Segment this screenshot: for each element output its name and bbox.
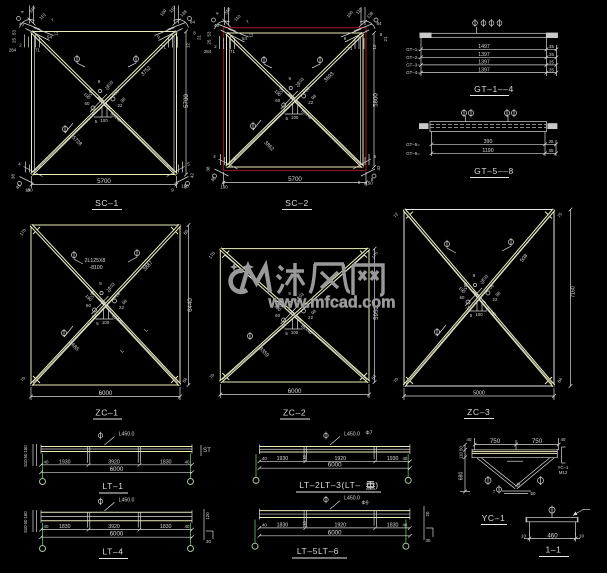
svg-text:180: 180 <box>25 188 33 193</box>
svg-text:M12: M12 <box>559 470 568 475</box>
svg-text:6000: 6000 <box>110 531 124 538</box>
svg-text:): ) <box>375 480 378 490</box>
svg-text:GT–1=: GT–1= <box>406 47 420 52</box>
svg-text:110: 110 <box>302 454 307 462</box>
svg-text:30: 30 <box>206 539 211 544</box>
svg-text:3920: 3920 <box>108 459 120 465</box>
svg-text:5700: 5700 <box>183 94 190 108</box>
svg-text:L450.0: L450.0 <box>344 496 360 502</box>
svg-text:100: 100 <box>291 115 299 120</box>
svg-text:60: 60 <box>85 101 90 106</box>
svg-text:6440: 6440 <box>187 298 194 312</box>
svg-text:71: 71 <box>348 46 353 51</box>
svg-text:1190: 1190 <box>482 148 493 154</box>
svg-text:120: 120 <box>205 512 210 520</box>
svg-text:510: 510 <box>23 459 28 467</box>
svg-text:53: 53 <box>207 31 212 36</box>
svg-text:1497: 1497 <box>478 44 490 50</box>
svg-text:2L125X8: 2L125X8 <box>85 258 106 264</box>
svg-text:6000: 6000 <box>288 388 302 395</box>
svg-text:40: 40 <box>44 524 49 529</box>
svg-text:71: 71 <box>161 45 166 50</box>
svg-text:284: 284 <box>204 49 212 54</box>
svg-text:60: 60 <box>460 295 465 300</box>
svg-text:35: 35 <box>549 60 554 65</box>
svg-text:LT–5LT–6: LT–5LT–6 <box>297 546 339 556</box>
svg-text:60: 60 <box>275 98 280 103</box>
svg-text:L450.0: L450.0 <box>344 432 360 438</box>
svg-text:6000: 6000 <box>110 466 124 473</box>
svg-text:GT–4=: GT–4= <box>406 70 420 75</box>
svg-text:1930: 1930 <box>277 456 289 462</box>
svg-text:6000: 6000 <box>328 529 342 536</box>
svg-text:35: 35 <box>549 44 554 49</box>
svg-text:Φ9: Φ9 <box>361 501 368 507</box>
svg-text:40: 40 <box>185 459 190 464</box>
svg-text:284: 284 <box>9 48 17 53</box>
svg-text:38: 38 <box>206 166 211 171</box>
svg-text:12: 12 <box>54 31 59 36</box>
svg-text:12: 12 <box>372 44 377 49</box>
svg-text:1830: 1830 <box>277 522 289 528</box>
svg-text:1920: 1920 <box>335 522 347 528</box>
svg-text:Φ7: Φ7 <box>365 431 372 437</box>
svg-text:25: 25 <box>12 38 17 43</box>
svg-text:ZC–3: ZC–3 <box>467 407 490 417</box>
svg-text:100: 100 <box>291 330 299 335</box>
svg-text:53: 53 <box>12 30 17 35</box>
svg-text:5700: 5700 <box>288 176 302 183</box>
svg-text:7160: 7160 <box>571 286 577 298</box>
svg-text:30: 30 <box>426 538 431 543</box>
svg-text:50: 50 <box>459 446 464 451</box>
svg-text:1397: 1397 <box>478 52 490 58</box>
svg-text:150: 150 <box>365 181 373 186</box>
svg-text:10: 10 <box>579 533 584 538</box>
svg-text:150: 150 <box>23 511 28 519</box>
svg-text:ZC–2: ZC–2 <box>283 408 306 418</box>
svg-text:40: 40 <box>44 459 49 464</box>
svg-text:54: 54 <box>47 35 52 40</box>
svg-text:100: 100 <box>102 320 110 325</box>
svg-text:100: 100 <box>220 185 228 190</box>
svg-text:42: 42 <box>376 165 381 170</box>
svg-text:5000: 5000 <box>473 391 485 397</box>
svg-text:35: 35 <box>549 139 554 144</box>
svg-text:460: 460 <box>547 532 558 539</box>
svg-text:12: 12 <box>249 32 254 37</box>
svg-text:21: 21 <box>197 35 202 40</box>
svg-text:71: 71 <box>35 48 40 53</box>
svg-text:1397: 1397 <box>478 67 490 73</box>
svg-text:5800: 5800 <box>373 93 380 107</box>
svg-text:SC–1: SC–1 <box>95 198 119 208</box>
svg-text:750: 750 <box>490 438 501 445</box>
svg-text:35: 35 <box>549 52 554 57</box>
svg-text:42: 42 <box>190 173 195 178</box>
svg-text:40: 40 <box>402 522 407 527</box>
svg-text:GT–2=: GT–2= <box>406 55 420 60</box>
svg-text:50: 50 <box>23 519 28 524</box>
svg-text:60: 60 <box>86 303 91 308</box>
svg-text:1830: 1830 <box>387 522 399 528</box>
svg-text:-8100: -8100 <box>89 265 102 271</box>
svg-text:LT–4: LT–4 <box>102 547 123 557</box>
svg-text:150: 150 <box>23 445 28 453</box>
svg-text:680: 680 <box>459 472 465 481</box>
svg-text:1397: 1397 <box>478 60 490 66</box>
svg-text:1830: 1830 <box>59 524 71 530</box>
svg-text:40: 40 <box>467 437 472 442</box>
svg-text:40: 40 <box>561 437 566 442</box>
svg-text:YC–1: YC–1 <box>482 513 506 523</box>
svg-text:ZC–1: ZC–1 <box>95 408 118 418</box>
svg-text:20: 20 <box>516 482 521 487</box>
svg-text:54: 54 <box>242 36 247 41</box>
svg-text:GT–5––8: GT–5––8 <box>474 166 514 176</box>
svg-text:6000: 6000 <box>99 390 113 397</box>
svg-text:LT–2LT–3(LT–: LT–2LT–3(LT– <box>299 480 361 490</box>
svg-text:110: 110 <box>302 520 307 528</box>
svg-text:60: 60 <box>275 313 280 318</box>
svg-text:L450.0: L450.0 <box>119 432 135 438</box>
svg-text:5700: 5700 <box>97 178 111 185</box>
svg-text:35: 35 <box>549 148 554 153</box>
svg-text:1830: 1830 <box>160 524 172 530</box>
svg-text:40: 40 <box>262 522 267 527</box>
svg-text:150: 150 <box>181 184 189 189</box>
svg-text:LT–1: LT–1 <box>102 481 123 491</box>
svg-text:3920: 3920 <box>108 524 120 530</box>
svg-text:40: 40 <box>402 456 407 461</box>
svg-text:ST: ST <box>203 447 211 454</box>
svg-text:20: 20 <box>425 511 430 516</box>
svg-text:40: 40 <box>185 524 190 529</box>
svg-text:35: 35 <box>549 67 554 72</box>
svg-text:21: 21 <box>383 36 388 41</box>
svg-text:50: 50 <box>23 453 28 458</box>
svg-text:1930: 1930 <box>59 459 71 465</box>
svg-text:L450.0: L450.0 <box>119 497 135 503</box>
svg-text:390: 390 <box>484 139 493 145</box>
svg-text:40: 40 <box>262 456 267 461</box>
svg-text:71: 71 <box>230 49 235 54</box>
svg-text:GT–1––4: GT–1––4 <box>474 84 514 94</box>
svg-text:GT–5=: GT–5= <box>406 142 420 147</box>
svg-text:10: 10 <box>521 533 526 538</box>
svg-text:50: 50 <box>531 491 536 496</box>
svg-text:1930: 1930 <box>387 456 399 462</box>
svg-text:25: 25 <box>207 39 212 44</box>
svg-text:38: 38 <box>11 174 16 179</box>
svg-text:www.mfcad.com: www.mfcad.com <box>267 294 395 312</box>
svg-text:GT–6=: GT–6= <box>406 151 420 156</box>
svg-text:SC–2: SC–2 <box>285 198 309 208</box>
svg-text:510: 510 <box>23 525 28 533</box>
svg-text:110: 110 <box>459 451 464 459</box>
svg-text:750: 750 <box>532 438 543 445</box>
svg-text:1830: 1830 <box>160 459 172 465</box>
svg-text:100: 100 <box>100 118 108 123</box>
svg-text:1–1: 1–1 <box>546 545 562 555</box>
svg-text:100: 100 <box>475 312 483 317</box>
svg-text:GT–3=: GT–3= <box>406 63 420 68</box>
svg-text:6000: 6000 <box>328 462 342 469</box>
